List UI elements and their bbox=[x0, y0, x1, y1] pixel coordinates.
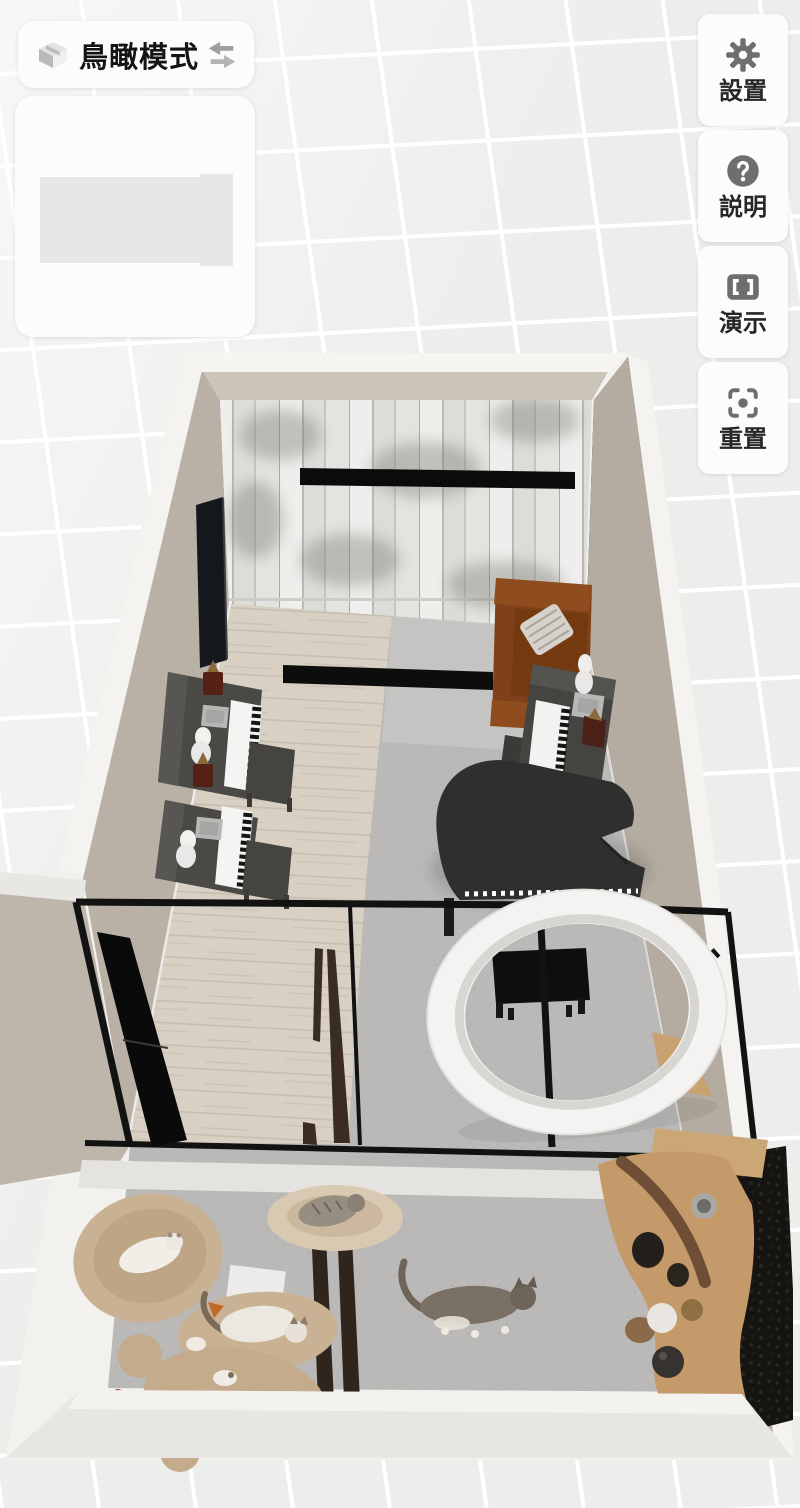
minimap-placeholder-step bbox=[200, 174, 233, 266]
gear-icon bbox=[725, 37, 761, 73]
presentation-icon bbox=[725, 269, 761, 305]
wall-tv[interactable] bbox=[196, 497, 227, 668]
cat-bed-1[interactable] bbox=[267, 1185, 403, 1251]
app-root: { "mode_button": { "label": "鳥瞰模式", "ico… bbox=[0, 0, 800, 1508]
sheet-music-1 bbox=[201, 705, 229, 729]
isometric-box-icon bbox=[33, 35, 73, 75]
help-label: 説明 bbox=[719, 196, 767, 220]
reset-button[interactable]: 重置 bbox=[698, 362, 788, 474]
sheet-music-3 bbox=[571, 692, 604, 720]
settings-label: 設置 bbox=[719, 80, 767, 104]
demo-button[interactable]: 演示 bbox=[698, 246, 788, 358]
reset-icon bbox=[725, 385, 761, 421]
view-mode-button[interactable]: 鳥瞰模式 bbox=[18, 21, 254, 88]
view-mode-label: 鳥瞰模式 bbox=[79, 34, 199, 76]
side-toolbar: 設置 説明 演示 重置 bbox=[698, 14, 788, 474]
help-button[interactable]: 説明 bbox=[698, 130, 788, 242]
bottom-wall bbox=[6, 1390, 793, 1458]
minimap-preview-card[interactable] bbox=[15, 96, 255, 337]
swap-arrows-icon bbox=[205, 38, 239, 72]
settings-button[interactable]: 設置 bbox=[698, 14, 788, 126]
sheet-music-2 bbox=[195, 817, 223, 841]
reset-label: 重置 bbox=[719, 428, 767, 452]
question-icon bbox=[725, 153, 761, 189]
demo-label: 演示 bbox=[719, 312, 767, 336]
minimap-placeholder bbox=[40, 177, 208, 263]
